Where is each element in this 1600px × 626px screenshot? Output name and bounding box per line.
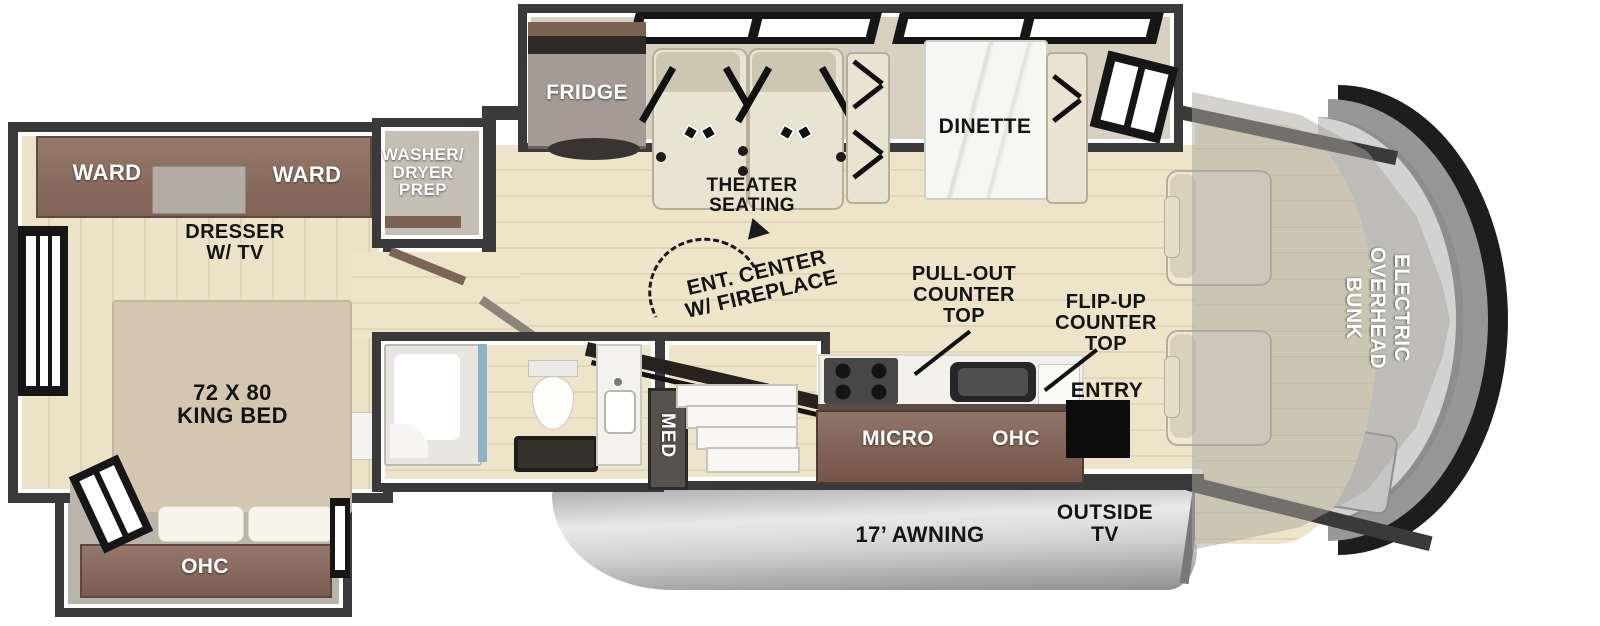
bedroom-left-window [18, 226, 68, 396]
ward-left-label: WARD [52, 162, 162, 185]
dresser-front [152, 166, 246, 214]
outside-tv-label: OUTSIDE TV [1040, 502, 1170, 546]
vanity-sink [596, 344, 642, 466]
dinette-bench-left [846, 52, 890, 204]
cupholder [738, 146, 748, 156]
theater-seating-label: THEATER SEATING [688, 176, 816, 216]
nightstand-right [350, 412, 374, 460]
washer-dryer-base [385, 216, 461, 228]
shower [384, 344, 482, 466]
flip-up-counter-label: FLIP-UP COUNTER TOP [1036, 292, 1176, 354]
toilet-tank [528, 360, 578, 377]
fridge-label: FRIDGE [534, 82, 640, 104]
bath-mat [514, 436, 598, 472]
dinette-label: DINETTE [918, 116, 1052, 138]
pull-out-counter-label: PULL-OUT COUNTER TOP [893, 264, 1035, 326]
dinette-bench-right [1046, 52, 1088, 204]
fridge-top-cabinet [528, 22, 646, 36]
pillow [158, 506, 244, 542]
entry-door [1066, 400, 1130, 458]
bedroom-slide-window-right [330, 498, 350, 578]
cupholder [656, 152, 666, 162]
ward-right-label: WARD [252, 164, 362, 187]
pillow [248, 506, 334, 542]
med-label: MED [653, 396, 677, 476]
kitchen-sink [950, 362, 1036, 402]
dresser-tv-label: DRESSER W/ TV [155, 222, 315, 264]
overhead-bunk-label: ELECTRIC OVERHEAD BUNK [1333, 203, 1413, 413]
fridge-vent [528, 36, 646, 54]
step-tread [706, 447, 800, 473]
cupholder [836, 152, 846, 162]
king-bed-label: 72 X 80 KING BED [130, 382, 335, 428]
rv-floorplan: WARD WARD DRESSER W/ TV 72 X 80 KING BED… [0, 0, 1600, 626]
kitchen-ohc-label: OHC [966, 428, 1066, 450]
awning-label: 17’ AWNING [790, 524, 1050, 547]
micro-label: MICRO [838, 428, 958, 450]
washer-dryer-label: WASHER/ DRYER PREP [380, 146, 466, 199]
entry-label: ENTRY [1060, 380, 1154, 402]
shower-door [478, 344, 487, 462]
bedroom-ohc-label: OHC [140, 556, 270, 578]
fridge-base [548, 138, 640, 160]
slide-window-1 [628, 12, 882, 44]
stove [824, 358, 898, 404]
